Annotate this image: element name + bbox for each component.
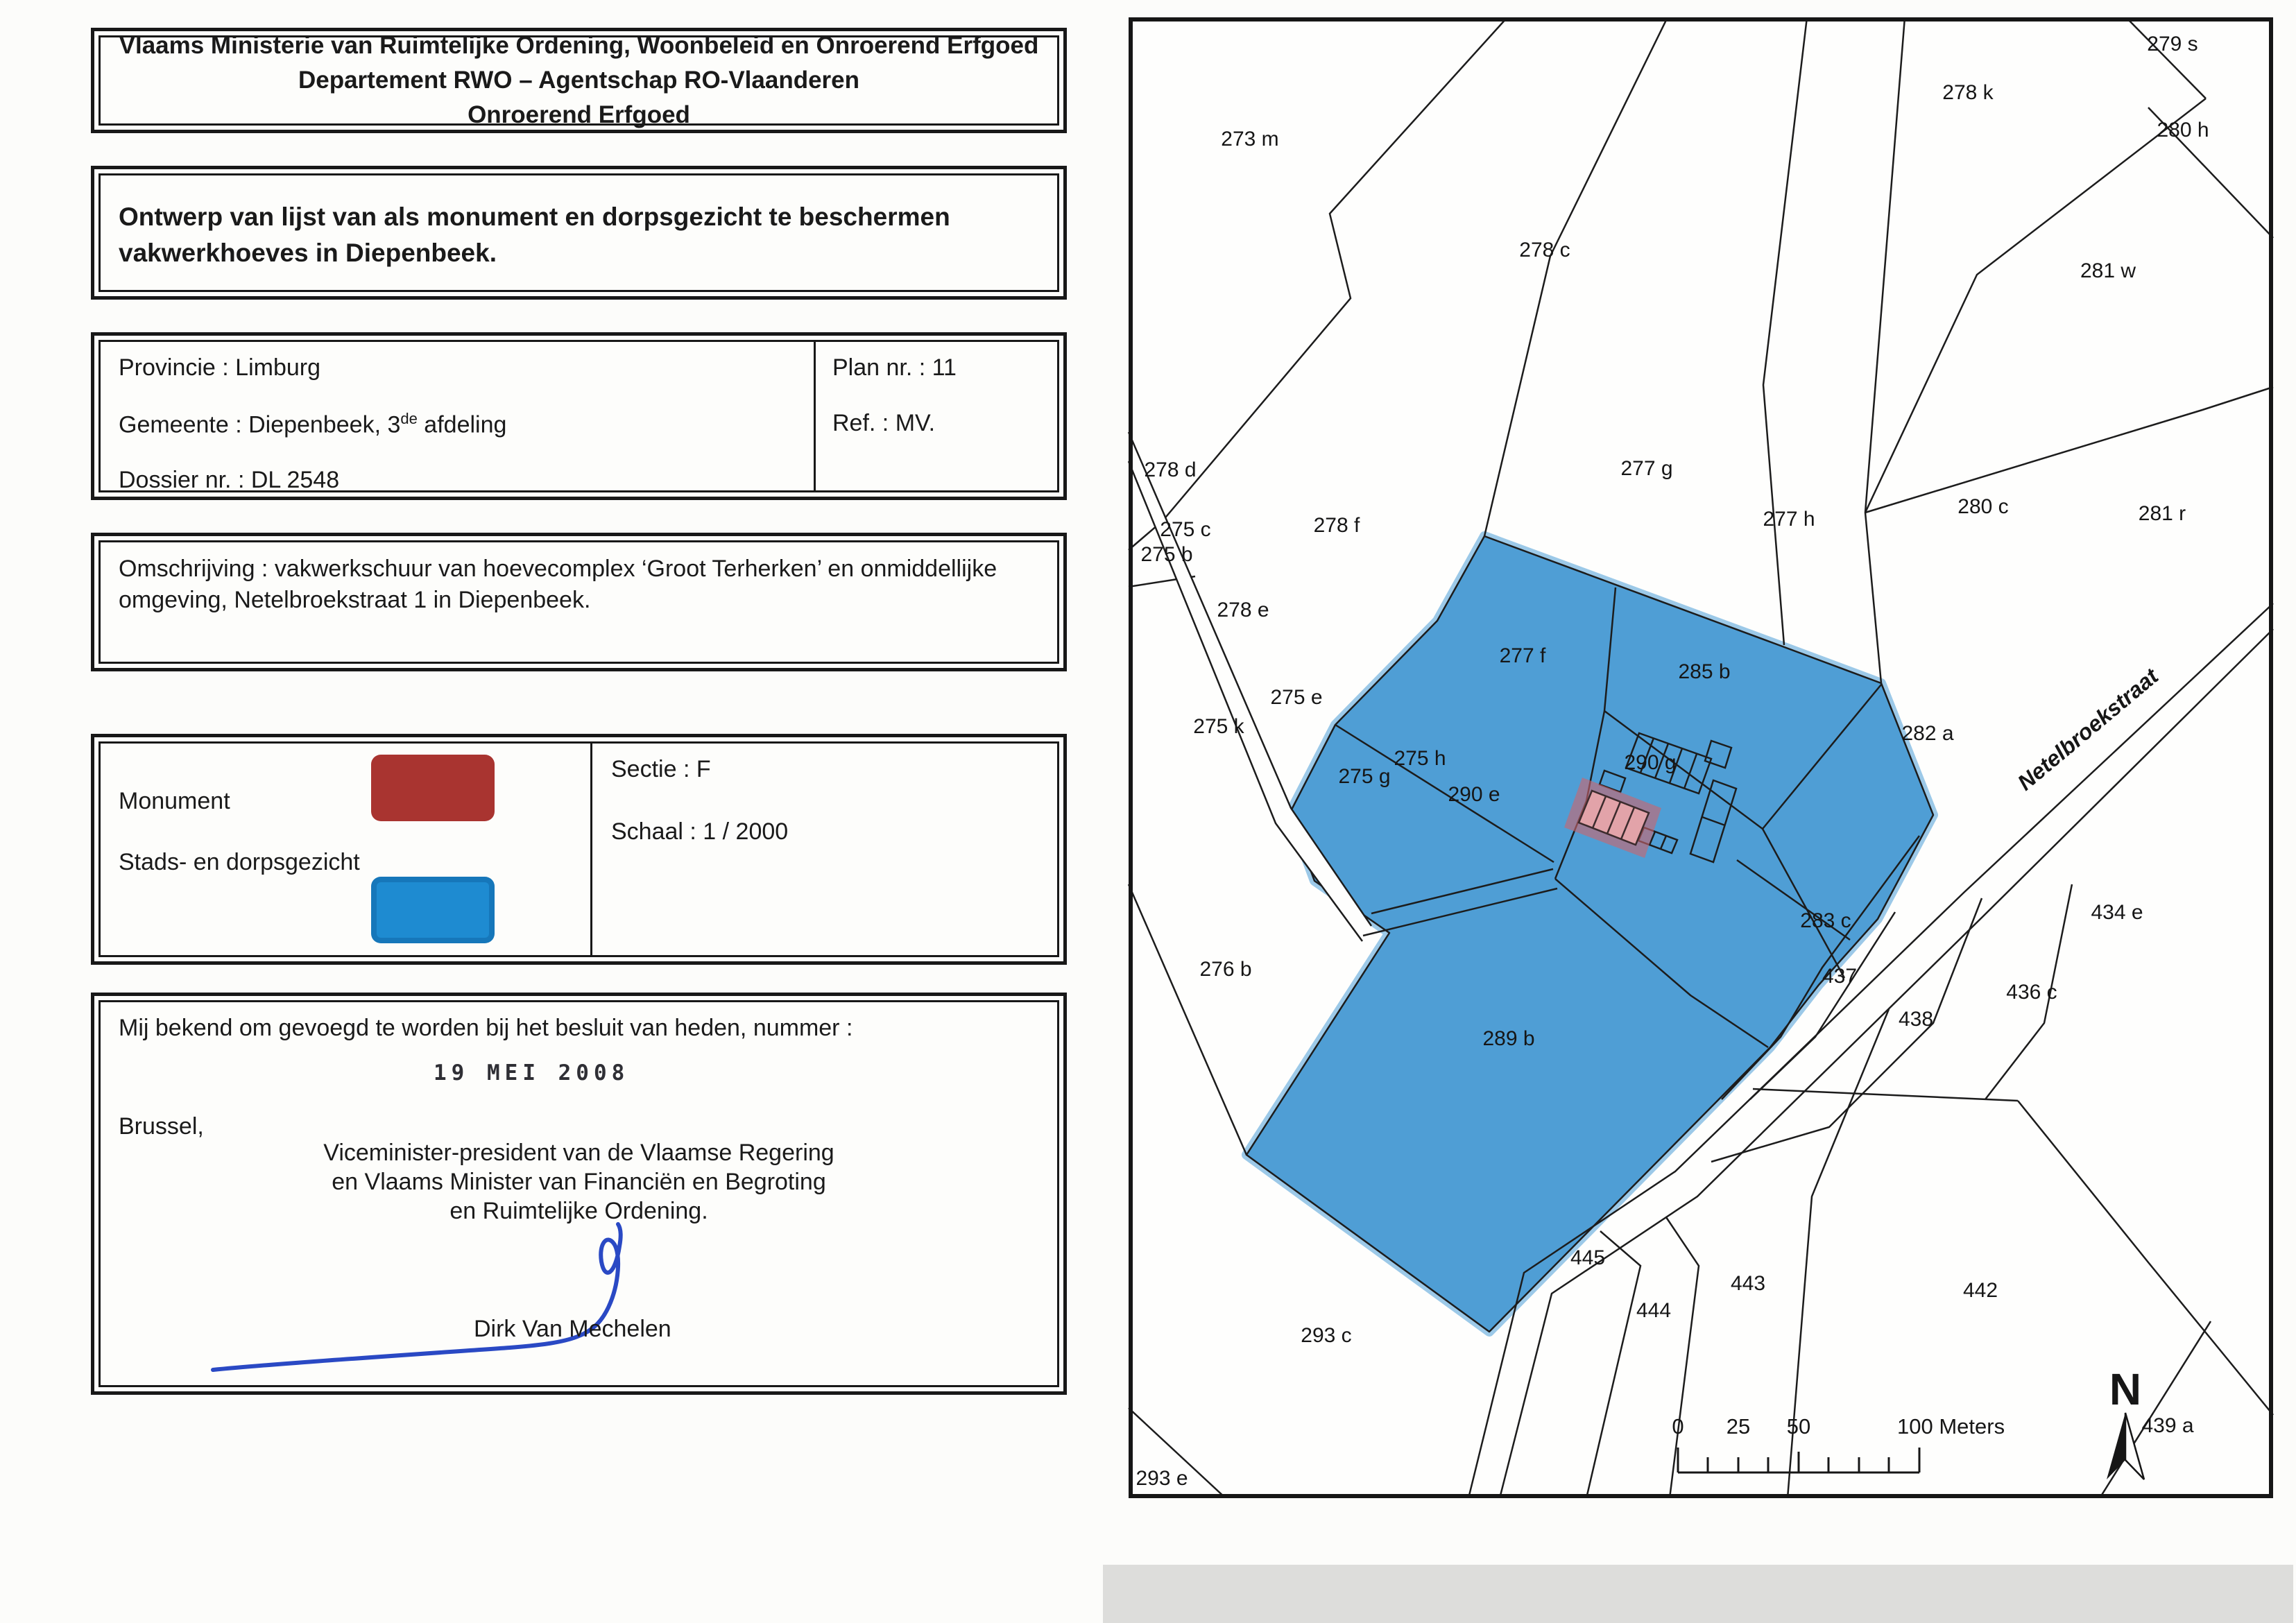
schaal-field: Schaal : 1 / 2000 [611,818,788,845]
parcel-label-281-r: 281 r [2139,502,2186,525]
parcel-label-436-c: 436 c [2006,981,2057,1004]
scale-tick-25: 25 [1727,1414,1750,1439]
parcel-label-278-d: 278 d [1144,458,1196,481]
parcel-label-277-g: 277 g [1620,457,1672,480]
parcel-label-275-k: 275 k [1193,715,1244,738]
legend-box-divider [590,744,592,955]
parcel-label-275-b: 275 b [1140,543,1192,566]
cadastral-map-svg: Netelbroekstraat 273 m278 c278 k279 s280… [1122,17,2279,1498]
parcel-label-273-m: 273 m [1221,128,1278,151]
header-box: Vlaams Ministerie van Ruimtelijke Ordeni… [91,28,1067,133]
gemeente-suffix: afdeling [418,411,507,438]
info-box-divider [814,342,816,490]
date-stamp: 19 MEI 2008 [434,1060,629,1085]
parcel-label-280-h: 280 h [2157,119,2209,141]
parcel-label-289-b: 289 b [1482,1027,1534,1050]
parcel-label-283-c: 283 c [1800,909,1851,932]
parcel-label-290-g: 290 g [1624,751,1676,774]
parcel-label-275-g: 275 g [1338,765,1390,788]
gemeente-field: Gemeente : Diepenbeek, 3de afdeling [119,410,506,438]
scale-tick-0: 0 [1672,1414,1684,1439]
parcel-label-278-k: 278 k [1942,81,1994,104]
cadastral-map: Netelbroekstraat 273 m278 c278 k279 s280… [1122,17,2279,1502]
header-line-2: Departement RWO – Agentschap RO-Vlaander… [298,63,859,98]
info-box: Provincie : Limburg Gemeente : Diepenbee… [91,332,1067,500]
signature [184,1210,808,1380]
parcel-label-439-a: 439 a [2141,1414,2193,1437]
legend-monument-label: Monument [119,788,230,815]
signer-name: Dirk Van Mechelen [474,1316,671,1343]
parcel-label-280-c: 280 c [1957,495,2008,518]
parcel-label-281-w: 281 w [2080,259,2136,282]
dossier-field: Dossier nr. : DL 2548 [119,467,339,494]
header-line-3: Onroerend Erfgoed [468,98,690,132]
minister-line-1: Viceminister-president van de Vlaamse Re… [101,1140,1057,1167]
besluit-line: Mij bekend om gevoegd te worden bij het … [119,1015,853,1042]
scale-tick-50: 50 [1787,1414,1810,1439]
parcel-label-275-c: 275 c [1160,518,1210,541]
plan-field: Plan nr. : 11 [832,354,957,381]
parcel-label-277-h: 277 h [1763,508,1815,531]
gemeente-prefix: Gemeente : Diepenbeek, 3 [119,411,400,438]
legend-box: Monument Stads- en dorpsgezicht Sectie :… [91,734,1067,965]
parcel-label-437: 437 [1822,965,1857,988]
parcel-label-276-b: 276 b [1199,958,1251,981]
ref-field: Ref. : MV. [832,410,935,437]
parcel-label-279-s: 279 s [2147,33,2198,55]
scale-end-label: 100 Meters [1897,1414,2005,1439]
legend-dorpsgezicht-swatch [371,877,495,943]
parcel-label-275-h: 275 h [1394,747,1446,770]
title-box-inner: Ontwerp van lijst van als monument en do… [98,173,1059,292]
sectie-field: Sectie : F [611,756,711,783]
parcel-label-442: 442 [1963,1279,1998,1302]
parcel-label-277-f: 277 f [1500,644,1546,667]
omschrijving-box-inner: Omschrijving : vakwerkschuur van hoeveco… [98,540,1059,664]
parcel-label-278-f: 278 f [1314,514,1360,537]
gemeente-superscript: de [400,410,417,427]
omschrijving-text: Omschrijving : vakwerkschuur van hoeveco… [119,553,1041,616]
parcel-label-443: 443 [1731,1272,1765,1295]
document-title: Ontwerp van lijst van als monument en do… [101,175,1018,295]
parcel-label-438: 438 [1899,1008,1933,1031]
parcel-label-293-c: 293 c [1301,1324,1351,1347]
parcel-label-434-e: 434 e [2091,901,2143,924]
parcel-label-293-e: 293 e [1136,1467,1188,1490]
minister-line-2: en Vlaams Minister van Financiën en Begr… [101,1169,1057,1196]
provincie-field: Provincie : Limburg [119,354,320,381]
scanned-document-page: Vlaams Ministerie van Ruimtelijke Ordeni… [0,0,2296,1623]
parcel-label-444: 444 [1636,1299,1671,1322]
scan-shadow-band [1103,1565,2293,1623]
besluit-box-inner: Mij bekend om gevoegd te worden bij het … [98,1000,1059,1387]
parcel-label-275-e: 275 e [1270,686,1322,709]
title-box: Ontwerp van lijst van als monument en do… [91,166,1067,300]
legend-monument-swatch [371,755,495,821]
header-line-1: Vlaams Ministerie van Ruimtelijke Ordeni… [119,28,1039,63]
parcel-label-285-b: 285 b [1678,660,1730,683]
signature-stroke [213,1224,621,1370]
parcel-label-445: 445 [1570,1246,1605,1269]
header-box-inner: Vlaams Ministerie van Ruimtelijke Ordeni… [98,35,1059,126]
legend-dorpsgezicht-label: Stads- en dorpsgezicht [119,849,360,876]
besluit-box: Mij bekend om gevoegd te worden bij het … [91,993,1067,1395]
legend-box-inner: Monument Stads- en dorpsgezicht Sectie :… [98,741,1059,957]
parcel-label-278-c: 278 c [1519,239,1570,261]
north-letter: N [2109,1364,2141,1414]
parcel-label-282-a: 282 a [1901,722,1953,745]
parcel-label-278-e: 278 e [1217,599,1269,621]
city-label: Brussel, [119,1113,204,1140]
parcel-label-290-e: 290 e [1448,783,1500,806]
omschrijving-box: Omschrijving : vakwerkschuur van hoeveco… [91,533,1067,671]
info-box-inner: Provincie : Limburg Gemeente : Diepenbee… [98,340,1059,492]
